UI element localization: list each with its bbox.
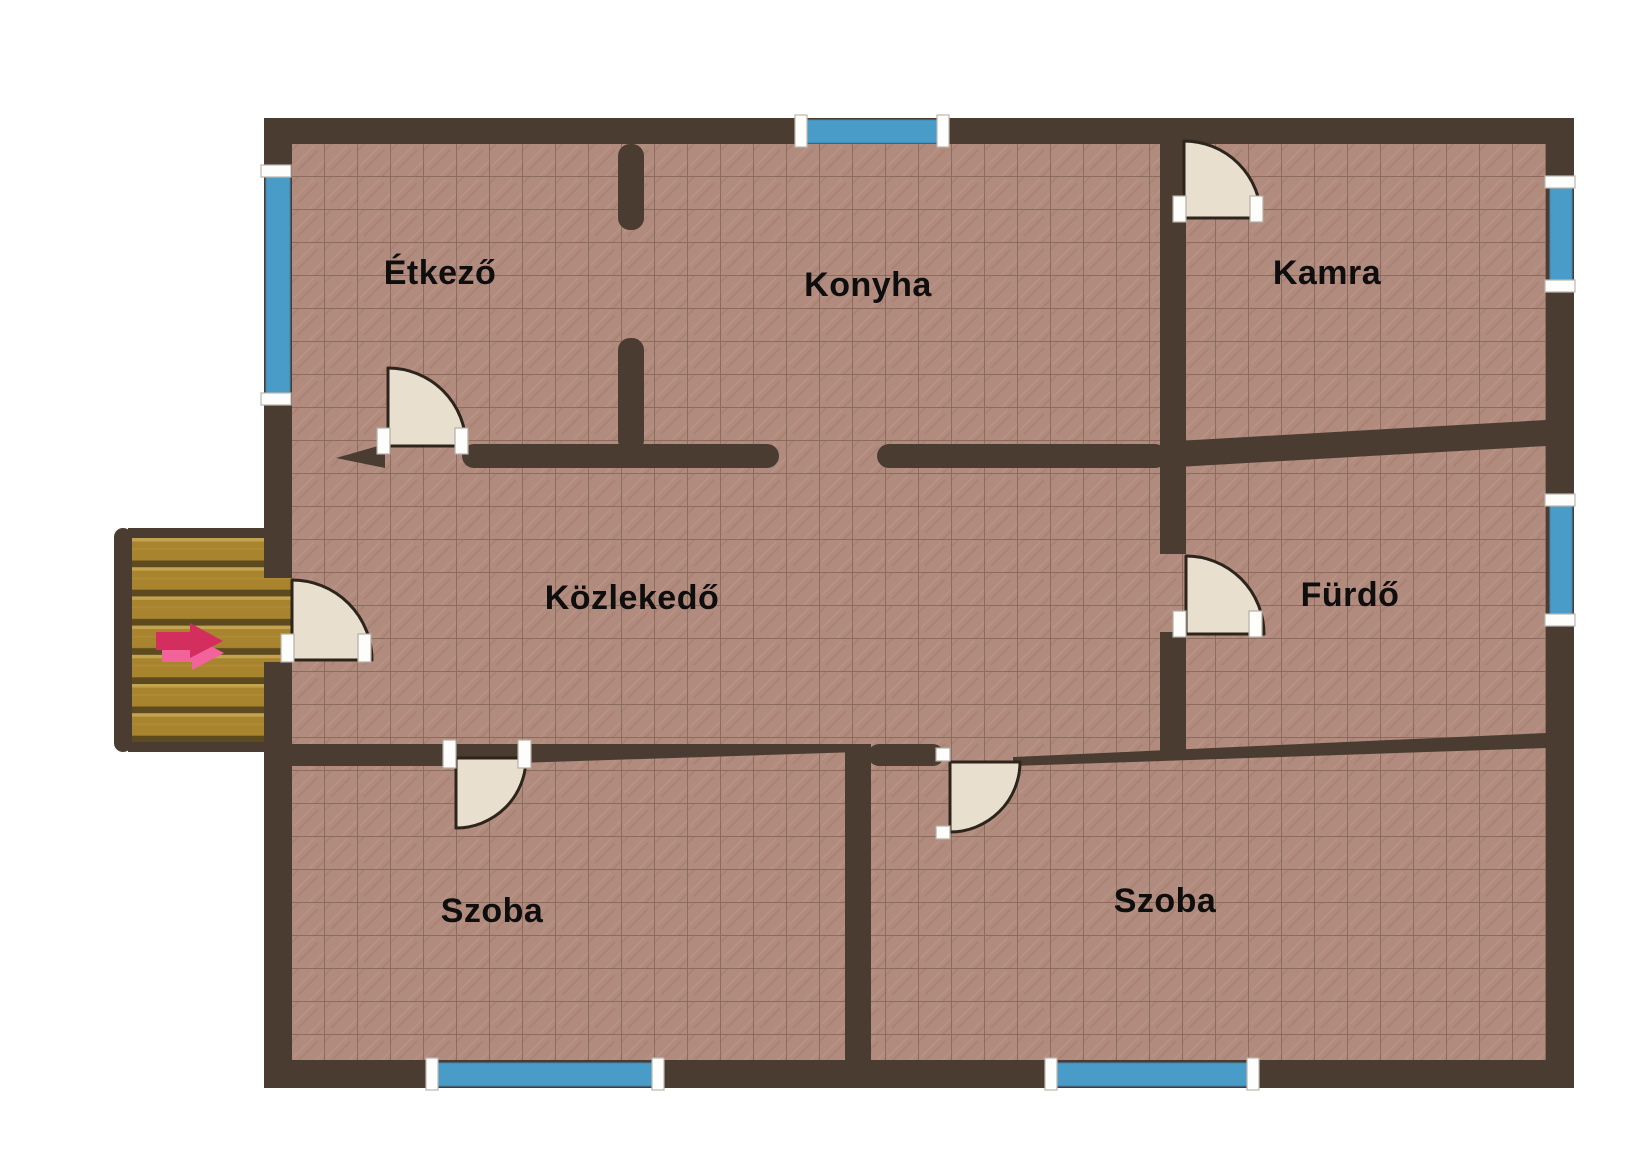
room-label-szoba-right: Szoba <box>1114 882 1217 920</box>
room-label-kozlekedo: Közlekedő <box>545 579 720 617</box>
room-label-etkezo: Étkező <box>384 254 497 292</box>
wall-szoba-divider <box>845 744 871 1088</box>
window-furdo-right <box>1545 494 1575 626</box>
room-konyha: Konyha <box>804 266 932 304</box>
window-etkezo-left <box>261 165 291 405</box>
room-etkezo: Étkező <box>384 254 497 292</box>
wall-szoba-top-left <box>292 744 453 766</box>
floor-plan-page: Étkező Konyha Kamra Közlekedő Fürdő Szob… <box>0 0 1640 1160</box>
room-furdo: Fürdő <box>1301 576 1400 614</box>
wall-szoba-top-mid <box>868 744 944 766</box>
room-szoba-right: Szoba <box>1114 882 1217 920</box>
room-label-kamra: Kamra <box>1273 254 1382 292</box>
wall-mid-left <box>462 444 779 468</box>
wall-outer-left-lower <box>264 662 292 1088</box>
room-szoba-left: Szoba <box>441 892 544 930</box>
room-kamra: Kamra <box>1273 254 1382 292</box>
room-kozlekedo: Közlekedő <box>545 579 720 617</box>
room-label-konyha: Konyha <box>804 266 932 304</box>
window-szoba-left-bottom <box>426 1058 664 1090</box>
stair-border-left <box>114 528 132 752</box>
window-kamra-right <box>1545 176 1575 292</box>
wall-etkezo-konyha-upper <box>618 144 644 230</box>
room-label-furdo: Fürdő <box>1301 576 1400 614</box>
window-szoba-right-bottom <box>1045 1058 1259 1090</box>
window-konyha-top <box>795 115 949 147</box>
floor-plan-canvas: Étkező Konyha Kamra Közlekedő Fürdő Szob… <box>0 0 1640 1160</box>
wall-kozlekedo-furdo-lower <box>1160 632 1186 754</box>
room-label-szoba-left: Szoba <box>441 892 544 930</box>
wall-mid-right <box>877 444 1167 468</box>
wall-etkezo-konyha-lower <box>618 338 644 452</box>
